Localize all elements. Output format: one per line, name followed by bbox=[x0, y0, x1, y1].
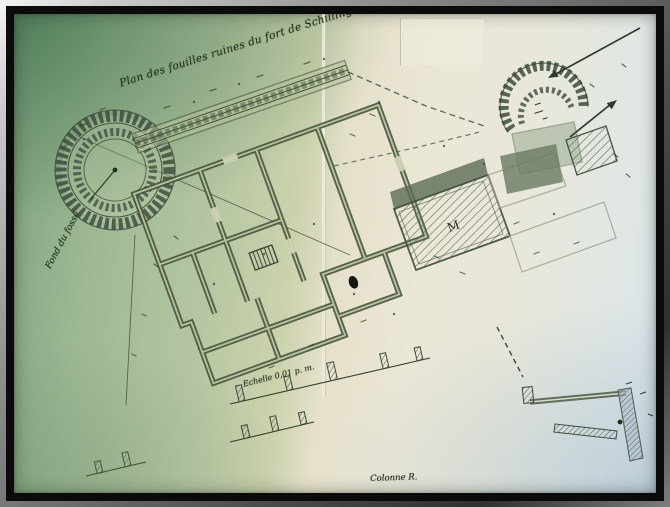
well-mark bbox=[347, 275, 360, 290]
direction-arrows bbox=[548, 28, 640, 137]
plan-drawing: M bbox=[14, 14, 656, 493]
section-fragment bbox=[86, 452, 146, 476]
framed-photo: M bbox=[0, 0, 670, 507]
section-elevation-row-2 bbox=[230, 412, 314, 442]
main-building-plan bbox=[134, 105, 448, 387]
plan-photograph: M bbox=[14, 14, 656, 493]
wall-corner-profile bbox=[497, 327, 653, 461]
room-m-hatched: M bbox=[390, 158, 510, 270]
column-note-handwriting: Colonne R. bbox=[370, 472, 418, 484]
curtain-wall bbox=[132, 60, 484, 166]
